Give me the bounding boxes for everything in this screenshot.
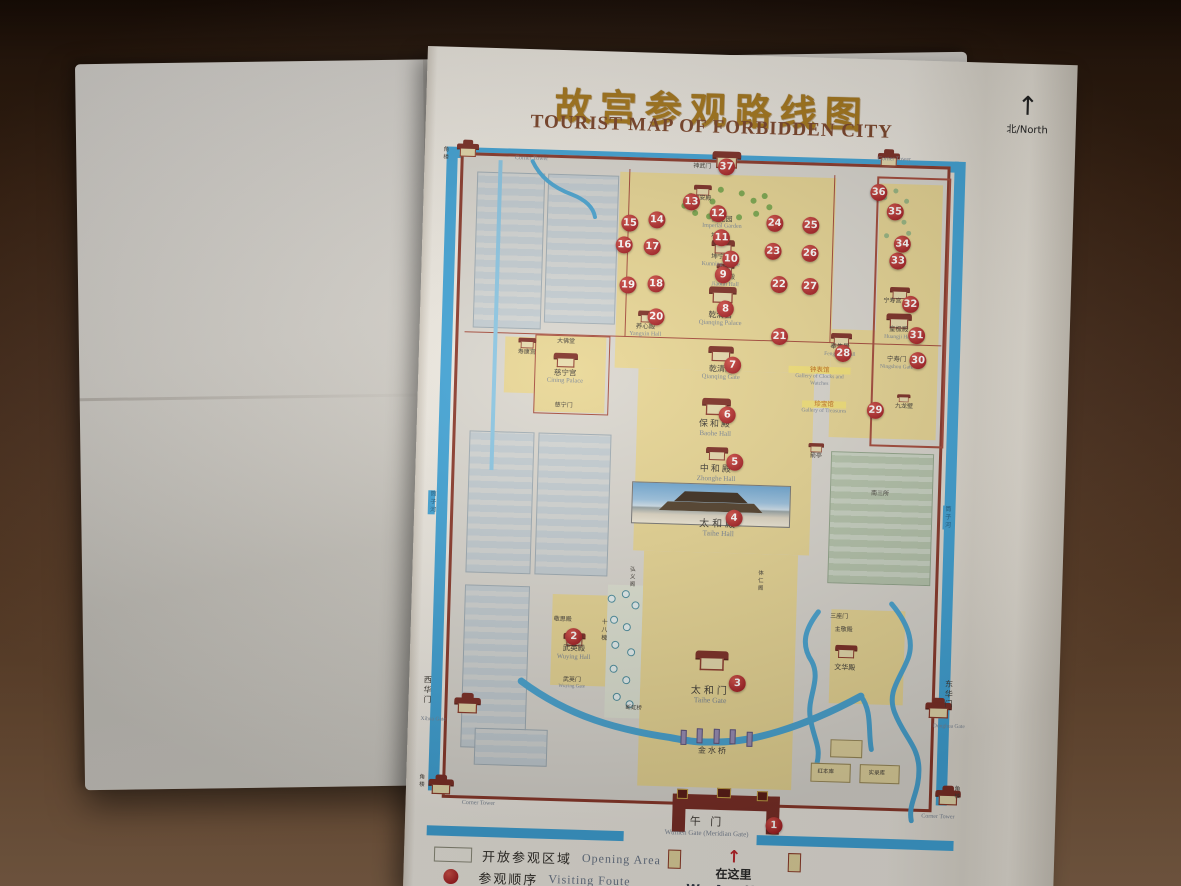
legend-visiting-route-zh: 参观顺序 xyxy=(478,868,539,886)
label-wumen: 午 门Wumen Gate (Meridian Gate) xyxy=(665,815,749,838)
label-donghua-gate-en: Donghua Gate xyxy=(933,723,965,730)
legend-visiting-route: 参观顺序 Visiting Foute xyxy=(433,867,631,886)
label-jinshuiqiao: 金水桥 xyxy=(698,746,728,756)
label-wuying-hall: 武英殿Wuying Hall xyxy=(557,644,591,661)
taihe-gate-icon xyxy=(694,650,731,671)
label-jianting: 箭亭 xyxy=(810,453,822,460)
label-corner-tower-sw-zh: 角楼 xyxy=(418,774,425,789)
label-hongyige: 弘义阁 xyxy=(628,566,635,589)
jinshui-bridge-icon xyxy=(680,730,686,745)
label-clocks-gallery: 钟表馆Gallery of Clocks and Watches xyxy=(788,366,851,388)
label-shoukang-palace: 寿康宫 xyxy=(518,349,536,356)
legend-opening-area-en: Opening Area xyxy=(582,851,661,868)
label-treasures-gallery: 珍宝馆Gallery of Treasures xyxy=(801,400,846,415)
you-are-here: ↑ 在这里 We Are Here xyxy=(673,846,794,886)
cining-palace-icon xyxy=(552,353,579,368)
label-tongzi-river-east: 筒子河 xyxy=(942,505,950,529)
label-ningshou-palace: 宁寿宫 xyxy=(883,298,901,305)
label-corner-tower-nw-zh: 角楼 xyxy=(442,146,449,161)
label-wenhua-hall: 文华殿 xyxy=(834,664,855,673)
wumen-pavilion-icon xyxy=(676,788,687,798)
jinshui-bridge-icon xyxy=(746,732,752,747)
forbidden-city-map: 午 门Wumen Gate (Meridian Gate)金水桥太和门Taihe… xyxy=(416,138,985,854)
wenhua-hall-icon xyxy=(834,645,858,659)
label-taihe-gate: 太和门Taihe Gate xyxy=(690,685,730,706)
corner-tower-nw-icon xyxy=(456,144,480,158)
label-shibahuai: 十八槐 xyxy=(599,618,607,642)
label-dafotang: 大佛堂 xyxy=(557,339,575,346)
legend-opening-area-zh: 开放参观区域 xyxy=(482,846,573,868)
storehouse-box xyxy=(830,740,863,758)
label-nine-dragon-screen: 九龙壁 xyxy=(895,403,913,410)
label-corner-tower-ne-en: Corner Tower xyxy=(878,156,911,164)
map-sheet: 故宫参观路线图 TOURIST MAP OF FORBIDDEN CITY ↑ … xyxy=(403,46,1078,886)
label-shiluku: 实录库 xyxy=(868,770,885,777)
label-corner-tower-nw-en: Corner Tower xyxy=(515,155,548,163)
label-cining-palace: 慈宁宫Cining Palace xyxy=(547,368,584,385)
north-indicator: ↑ 北/North xyxy=(1006,95,1049,137)
xihua-gate-icon xyxy=(453,697,482,713)
label-ningshou-gate: 宁寿门Ningshou Gate xyxy=(880,356,914,371)
wumen-pavilion-icon xyxy=(756,791,767,801)
jinshui-bridge-icon xyxy=(730,730,736,745)
north-arrow-icon: ↑ xyxy=(1007,95,1049,118)
opening-area-swatch xyxy=(434,847,472,863)
label-cining-gate: 慈宁门 xyxy=(555,402,573,409)
label-tirenge: 体仁阁 xyxy=(756,569,763,592)
label-zhujing-hall: 主敬殿 xyxy=(835,627,853,634)
label-xihua-gate-en: Xihua Gate xyxy=(420,716,445,723)
jinshui-bridge-icon xyxy=(697,729,703,744)
label-tongzi-river-west: 筒子河 xyxy=(428,490,436,514)
jinshui-bridge-icon xyxy=(713,728,719,743)
label-nansansuo: 南三所 xyxy=(871,491,889,498)
map-header: 故宫参观路线图 TOURIST MAP OF FORBIDDEN CITY ↑ … xyxy=(425,46,1077,153)
corner-tower-sw-icon xyxy=(427,779,455,795)
label-wuying-gate: 武英门Wuying Gate xyxy=(558,677,585,690)
legend-opening-area: 开放参观区域 Opening Area xyxy=(434,845,661,871)
label-duanhong-bridge: 断虹桥 xyxy=(625,705,642,712)
north-label: 北/North xyxy=(1006,124,1048,136)
label-xihua-gate: 西华门 xyxy=(422,675,432,705)
label-sanzuomen: 三座门 xyxy=(830,614,848,621)
wumen-pavilion-icon xyxy=(716,788,730,798)
label-shenwu-gate: 神武门 xyxy=(693,163,711,170)
jianting-pavilion-icon xyxy=(808,443,825,453)
garden-tree-icon xyxy=(904,199,909,204)
label-jingsi-hall: 敬思殿 xyxy=(554,617,572,624)
label-corner-tower-se-zh: 角楼 xyxy=(953,786,960,801)
label-corner-tower-sw-en: Corner Tower xyxy=(462,799,495,807)
legend-visiting-route-en: Visiting Foute xyxy=(548,872,631,886)
taihe-hall-lower-roof-silhouette xyxy=(654,501,767,514)
label-hongbenku: 红本库 xyxy=(817,768,834,775)
photo-of-paper-map: 故宫参观路线图 TOURIST MAP OF FORBIDDEN CITY ↑ … xyxy=(0,0,1181,886)
shoukang-palace-icon xyxy=(518,338,538,349)
visiting-route-dot-icon xyxy=(443,869,458,884)
label-donghua-gate: 东华门 xyxy=(944,680,954,710)
label-corner-tower-se-en: Corner Tower xyxy=(921,814,954,822)
